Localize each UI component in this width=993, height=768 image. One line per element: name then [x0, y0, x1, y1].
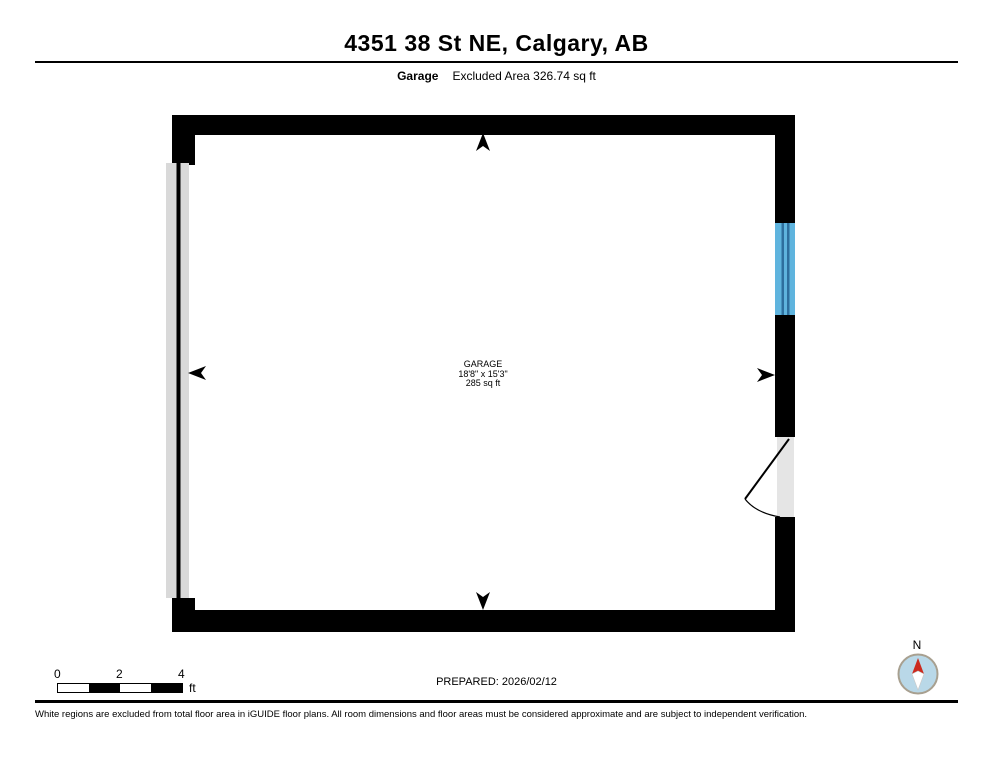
prepared-date: PREPARED: 2026/02/12	[0, 676, 993, 688]
window-symbol	[775, 223, 795, 315]
floor-subtitle: GarageExcluded Area 326.74 sq ft	[0, 69, 993, 83]
disclaimer-text: White regions are excluded from total fl…	[35, 709, 958, 720]
room-label: GARAGE 18'8" x 15'3" 285 sq ft	[383, 360, 583, 389]
header-divider	[35, 61, 958, 63]
wall-bottom	[172, 610, 795, 632]
dimension-arrow-left-icon	[188, 366, 206, 380]
wall-right-upper-segment	[775, 115, 795, 223]
dimension-arrow-up-icon	[476, 133, 490, 151]
page-title: 4351 38 St NE, Calgary, AB	[0, 30, 993, 57]
garage-door-symbol	[166, 163, 189, 598]
floor-name-label: Garage	[397, 69, 438, 83]
wall-top	[172, 115, 795, 135]
excluded-area-label: Excluded Area 326.74 sq ft	[452, 69, 595, 83]
wall-left-upper-segment	[172, 115, 195, 165]
door-opening	[777, 437, 794, 517]
footer-divider	[35, 700, 958, 703]
compass-icon	[897, 653, 939, 695]
room-area: 285 sq ft	[383, 379, 583, 389]
wall-right-lower-segment	[775, 517, 795, 632]
floor-plan-page: 4351 38 St NE, Calgary, AB GarageExclude…	[0, 0, 993, 768]
wall-left-lower-segment	[172, 598, 195, 632]
dimension-arrow-right-icon	[757, 368, 775, 382]
wall-right-middle-segment	[775, 315, 795, 437]
dimension-arrow-down-icon	[476, 592, 490, 610]
compass-north-label: N	[897, 638, 937, 652]
